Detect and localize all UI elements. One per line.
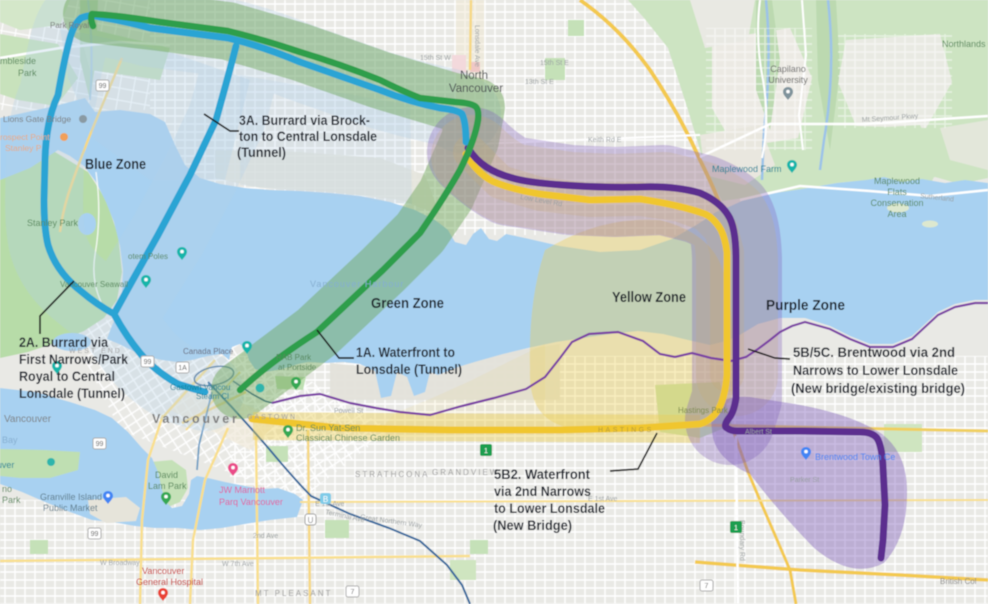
svg-text:1: 1 xyxy=(484,448,488,455)
svg-text:W Broadway: W Broadway xyxy=(100,560,140,567)
svg-text:(New bridge/existing bridge): (New bridge/existing bridge) xyxy=(791,380,965,396)
svg-text:5B/5C. Brentwood via 2nd: 5B/5C. Brentwood via 2nd xyxy=(793,344,955,360)
svg-text:Public Market: Public Market xyxy=(43,503,98,513)
svg-text:2nd Ave: 2nd Ave xyxy=(253,533,278,540)
svg-text:Area: Area xyxy=(887,209,906,219)
svg-text:2A. Burrard via: 2A. Burrard via xyxy=(19,334,108,350)
svg-text:99: 99 xyxy=(96,441,104,448)
svg-text:5B2. Waterfront: 5B2. Waterfront xyxy=(494,466,590,482)
svg-text:Purple Zone: Purple Zone xyxy=(766,297,845,314)
svg-text:David: David xyxy=(155,470,178,480)
svg-text:Royal to Central: Royal to Central xyxy=(19,368,115,384)
svg-text:British Col: British Col xyxy=(940,577,977,586)
svg-text:3A. Burrard via Brock-: 3A. Burrard via Brock- xyxy=(239,112,370,128)
svg-text:99: 99 xyxy=(91,531,99,538)
svg-text:STRATHCONA: STRATHCONA xyxy=(355,470,430,479)
svg-text:Vancouver: Vancouver xyxy=(4,414,52,425)
svg-text:15th St E: 15th St E xyxy=(540,60,569,67)
svg-text:Parq Vancouver: Parq Vancouver xyxy=(219,497,283,507)
svg-text:at Portside: at Portside xyxy=(278,363,317,372)
svg-text:Flats: Flats xyxy=(887,187,907,197)
svg-text:General Hospital: General Hospital xyxy=(136,577,203,587)
svg-text:GRANDVIEW: GRANDVIEW xyxy=(432,468,499,477)
svg-text:rospect Point: rospect Point xyxy=(0,132,50,142)
svg-text:Maplewood Farm: Maplewood Farm xyxy=(712,164,782,174)
svg-text:Brentwood Town Ce: Brentwood Town Ce xyxy=(815,452,895,462)
svg-text:Vancouver: Vancouver xyxy=(0,460,14,470)
svg-text:1A. Waterfront to: 1A. Waterfront to xyxy=(356,344,455,360)
svg-text:B: B xyxy=(323,495,328,504)
svg-text:Park Royal: Park Royal xyxy=(50,21,89,30)
svg-text:13th St E: 13th St E xyxy=(525,79,554,86)
svg-text:Stanley Park: Stanley Park xyxy=(27,218,79,228)
svg-text:Hastings Park: Hastings Park xyxy=(678,406,729,415)
svg-text:Classical Chinese Garden: Classical Chinese Garden xyxy=(296,433,400,443)
svg-text:Narrows to Lower Lonsdale: Narrows to Lower Lonsdale xyxy=(793,362,958,378)
svg-text:Lonsdale (Tunnel): Lonsdale (Tunnel) xyxy=(19,385,125,401)
svg-text:U: U xyxy=(308,516,314,525)
svg-text:Maplewood: Maplewood xyxy=(874,176,920,186)
svg-text:Vancouver Harbour: Vancouver Harbour xyxy=(310,279,404,289)
svg-text:Green Zone: Green Zone xyxy=(371,295,444,312)
svg-text:Capilano: Capilano xyxy=(770,64,806,74)
svg-text:99: 99 xyxy=(99,83,107,90)
svg-text:English Bay: English Bay xyxy=(0,435,18,445)
svg-text:Stanley P: Stanley P xyxy=(5,143,42,153)
svg-text:Northlands G: Northlands G xyxy=(942,39,988,49)
svg-text:1: 1 xyxy=(734,525,738,532)
svg-text:Parker St: Parker St xyxy=(790,477,819,484)
svg-text:7: 7 xyxy=(351,589,355,596)
svg-text:W 7th Ave: W 7th Ave xyxy=(222,561,254,568)
svg-text:otem Poles: otem Poles xyxy=(128,252,168,261)
svg-text:(New Bridge): (New Bridge) xyxy=(493,517,572,533)
svg-text:15th St W: 15th St W xyxy=(420,55,451,62)
svg-text:Park: Park xyxy=(18,68,37,78)
svg-text:Powell St: Powell St xyxy=(334,408,363,415)
svg-text:1A: 1A xyxy=(178,365,187,372)
svg-text:(Tunnel): (Tunnel) xyxy=(237,144,286,160)
svg-text:Vancouver: Vancouver xyxy=(152,412,240,426)
svg-text:Vancouver: Vancouver xyxy=(142,566,184,576)
svg-text:99: 99 xyxy=(144,359,152,366)
svg-text:MT PLEASANT: MT PLEASANT xyxy=(255,589,332,598)
svg-text:HASTINGS: HASTINGS xyxy=(598,427,654,434)
svg-text:Blue Zone: Blue Zone xyxy=(85,156,146,173)
svg-text:Gastown Vancou: Gastown Vancou xyxy=(170,383,230,392)
svg-text:via 2nd Narrows: via 2nd Narrows xyxy=(494,483,591,499)
svg-text:Lam Park: Lam Park xyxy=(148,481,187,491)
svg-text:Granville Island: Granville Island xyxy=(40,492,102,502)
svg-text:no: no xyxy=(2,484,12,494)
svg-text:Keith Rd E: Keith Rd E xyxy=(588,137,622,144)
svg-text:Albert St: Albert St xyxy=(745,429,772,436)
svg-text:North: North xyxy=(460,70,488,82)
svg-text:Ambleside: Ambleside xyxy=(0,56,36,66)
svg-text:Steam Cl: Steam Cl xyxy=(196,392,229,401)
svg-text:Park: Park xyxy=(2,495,21,505)
svg-text:Yellow Zone: Yellow Zone xyxy=(612,289,686,306)
svg-text:JW Marriott: JW Marriott xyxy=(219,485,265,495)
svg-text:GASTOWN: GASTOWN xyxy=(247,414,297,421)
svg-text:RAB Park: RAB Park xyxy=(276,353,312,362)
svg-text:Lonsdale (Tunnel): Lonsdale (Tunnel) xyxy=(356,361,462,377)
svg-text:ton to Central Lonsdale: ton to Central Lonsdale xyxy=(239,128,377,144)
svg-text:Canada Place: Canada Place xyxy=(183,347,234,356)
svg-text:Lonsdale Ave: Lonsdale Ave xyxy=(473,25,480,67)
svg-text:Lions Gate Bridge: Lions Gate Bridge xyxy=(3,114,71,124)
svg-text:to Lower Lonsdale: to Lower Lonsdale xyxy=(494,500,605,516)
svg-text:Vancouver: Vancouver xyxy=(449,83,503,95)
svg-text:Dr. Sun Yat-Sen: Dr. Sun Yat-Sen xyxy=(296,423,360,433)
svg-text:First Narrows/Park: First Narrows/Park xyxy=(19,351,128,367)
svg-text:Conservation: Conservation xyxy=(870,198,923,208)
svg-text:7: 7 xyxy=(705,583,709,590)
svg-text:University: University xyxy=(768,75,808,85)
